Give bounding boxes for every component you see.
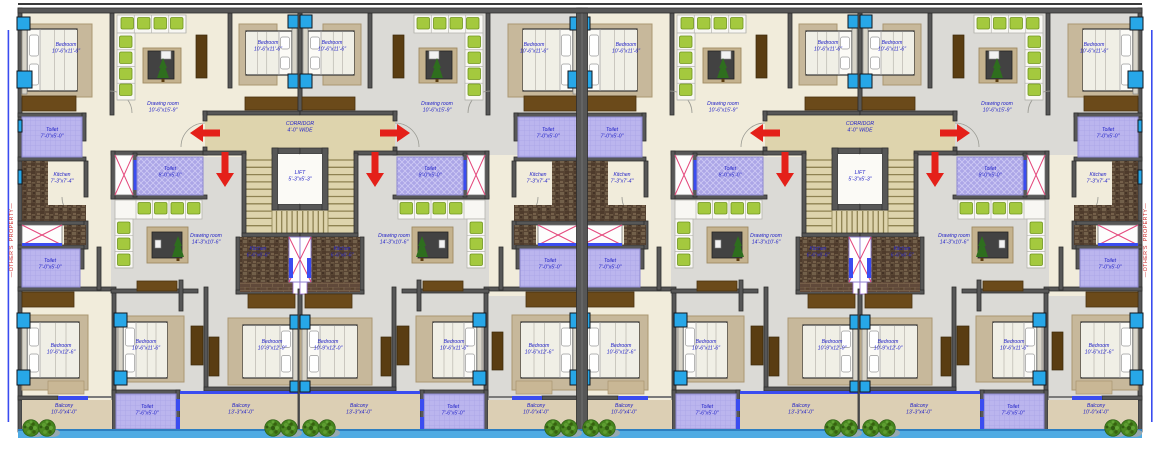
svg-text:Toilet: Toilet xyxy=(164,166,177,172)
svg-text:Kitchen: Kitchen xyxy=(810,246,827,252)
svg-text:13'-3"x4'-0": 13'-3"x4'-0" xyxy=(906,410,932,416)
svg-text:Toilet: Toilet xyxy=(1104,258,1117,264)
svg-text:Bedroom: Bedroom xyxy=(822,339,843,345)
svg-text:Bedroom: Bedroom xyxy=(1004,339,1025,345)
svg-text:Bedroom: Bedroom xyxy=(136,339,157,345)
svg-text:Bedroom: Bedroom xyxy=(524,42,545,48)
svg-text:Balcony: Balcony xyxy=(792,403,811,409)
svg-text:10'-6"x11'-6": 10'-6"x11'-6" xyxy=(52,49,80,55)
svg-text:7'-0"x5'-0": 7'-0"x5'-0" xyxy=(1099,265,1122,271)
svg-text:Toilet: Toilet xyxy=(1007,404,1020,410)
svg-text:Drawing room: Drawing room xyxy=(421,101,453,107)
svg-text:Bedroom: Bedroom xyxy=(258,40,279,46)
svg-text:Drawing room: Drawing room xyxy=(147,101,179,107)
svg-text:10'-6"x11'-6": 10'-6"x11'-6" xyxy=(254,47,282,53)
svg-text:6'-6"x6'-6": 6'-6"x6'-6" xyxy=(331,253,354,259)
svg-text:Toilet: Toilet xyxy=(44,258,57,264)
svg-text:7'-3"x7'-4": 7'-3"x7'-4" xyxy=(611,179,634,185)
svg-text:Balcony: Balcony xyxy=(1087,403,1106,409)
svg-text:Kitchen: Kitchen xyxy=(334,246,351,252)
svg-text:Bedroom: Bedroom xyxy=(611,343,632,349)
svg-text:Kitchen: Kitchen xyxy=(894,246,911,252)
svg-text:10'-9"x12'-0": 10'-9"x12'-0" xyxy=(258,346,287,352)
svg-text:6'-6"x6'-6": 6'-6"x6'-6" xyxy=(807,253,830,259)
svg-text:Kitchen: Kitchen xyxy=(250,246,267,252)
svg-text:7'-3"x7'-4": 7'-3"x7'-4" xyxy=(527,179,550,185)
svg-text:7'-3"x7'-4": 7'-3"x7'-4" xyxy=(1087,179,1110,185)
svg-text:—OTHER'S PROPERTY—: —OTHER'S PROPERTY— xyxy=(9,203,15,278)
svg-text:Drawing room: Drawing room xyxy=(981,101,1013,107)
svg-text:Kitchen: Kitchen xyxy=(530,172,547,178)
svg-text:Drawing room: Drawing room xyxy=(378,233,410,239)
svg-text:Toilet: Toilet xyxy=(447,404,460,410)
svg-text:10'-6"x15'-9": 10'-6"x15'-9" xyxy=(423,108,452,114)
svg-text:7'-0"x5'-0": 7'-0"x5'-0" xyxy=(1097,134,1120,140)
svg-text:LIFT: LIFT xyxy=(855,170,866,176)
svg-text:10'-6"x11'-6": 10'-6"x11'-6" xyxy=(878,47,906,53)
svg-text:10'-6"x15'-9": 10'-6"x15'-9" xyxy=(709,108,738,114)
svg-text:Balcony: Balcony xyxy=(232,403,251,409)
svg-text:Toilet: Toilet xyxy=(46,127,59,133)
svg-text:7'-0"x5'-0": 7'-0"x5'-0" xyxy=(39,265,62,271)
svg-text:8'-0"x5'-0": 8'-0"x5'-0" xyxy=(979,173,1002,179)
svg-text:—OTHER'S PROPERTY—: —OTHER'S PROPERTY— xyxy=(1143,203,1149,278)
svg-text:7'-0"x5'-0": 7'-0"x5'-0" xyxy=(599,265,622,271)
svg-text:Drawing room: Drawing room xyxy=(707,101,739,107)
svg-text:10'-6"x11'-6": 10'-6"x11'-6" xyxy=(440,346,468,352)
svg-text:10'-0"x4'-0": 10'-0"x4'-0" xyxy=(611,410,637,416)
svg-text:10'-6"x12'-6": 10'-6"x12'-6" xyxy=(1085,350,1114,356)
svg-text:13'-3"x4'-0": 13'-3"x4'-0" xyxy=(788,410,814,416)
svg-text:10'-6"x11'-6": 10'-6"x11'-6" xyxy=(132,346,160,352)
svg-text:10'-6"x12'-6": 10'-6"x12'-6" xyxy=(47,350,76,356)
svg-text:6'-6"x6'-6": 6'-6"x6'-6" xyxy=(247,253,270,259)
svg-text:Balcony: Balcony xyxy=(55,403,74,409)
svg-text:Bedroom: Bedroom xyxy=(696,339,717,345)
svg-text:Balcony: Balcony xyxy=(615,403,634,409)
svg-text:10'-9"x12'-0": 10'-9"x12'-0" xyxy=(818,346,847,352)
svg-text:LIFT: LIFT xyxy=(295,170,306,176)
svg-text:Toilet: Toilet xyxy=(724,166,737,172)
svg-text:7'-3"x7'-4": 7'-3"x7'-4" xyxy=(51,179,74,185)
svg-text:5'-3"x5'-3": 5'-3"x5'-3" xyxy=(848,177,872,183)
svg-text:Toilet: Toilet xyxy=(606,127,619,133)
svg-text:14'-3"x10'-6": 14'-3"x10'-6" xyxy=(192,240,221,246)
svg-text:4'-0" WIDE: 4'-0" WIDE xyxy=(287,128,313,134)
svg-text:7'-6"x5'-0": 7'-6"x5'-0" xyxy=(696,411,719,417)
svg-text:Kitchen: Kitchen xyxy=(54,172,71,178)
svg-text:Toilet: Toilet xyxy=(701,404,714,410)
svg-text:Toilet: Toilet xyxy=(984,166,997,172)
svg-text:Bedroom: Bedroom xyxy=(529,343,550,349)
svg-text:7'-0"x5'-0": 7'-0"x5'-0" xyxy=(601,134,624,140)
svg-text:Drawing room: Drawing room xyxy=(750,233,782,239)
svg-text:10'-6"x12'-6": 10'-6"x12'-6" xyxy=(607,350,636,356)
svg-text:8'-0"x5'-0": 8'-0"x5'-0" xyxy=(419,173,442,179)
svg-text:Kitchen: Kitchen xyxy=(1090,172,1107,178)
svg-text:7'-6"x5'-0": 7'-6"x5'-0" xyxy=(1002,411,1025,417)
svg-text:10'-0"x4'-0": 10'-0"x4'-0" xyxy=(523,410,549,416)
svg-text:7'-6"x5'-0": 7'-6"x5'-0" xyxy=(442,411,465,417)
svg-text:10'-6"x11'-6": 10'-6"x11'-6" xyxy=(612,49,640,55)
svg-text:Toilet: Toilet xyxy=(544,258,557,264)
svg-text:10'-0"x4'-0": 10'-0"x4'-0" xyxy=(51,410,77,416)
svg-text:10'-6"x11'-6": 10'-6"x11'-6" xyxy=(1000,346,1028,352)
svg-text:10'-6"x11'-6": 10'-6"x11'-6" xyxy=(1080,49,1108,55)
svg-text:Balcony: Balcony xyxy=(527,403,546,409)
svg-text:CORRIDOR: CORRIDOR xyxy=(286,121,314,127)
svg-text:Balcony: Balcony xyxy=(910,403,929,409)
svg-text:10'-6"x11'-6": 10'-6"x11'-6" xyxy=(692,346,720,352)
svg-text:13'-3"x4'-0": 13'-3"x4'-0" xyxy=(346,410,372,416)
svg-text:14'-3"x10'-6": 14'-3"x10'-6" xyxy=(940,240,969,246)
svg-text:7'-6"x5'-0": 7'-6"x5'-0" xyxy=(136,411,159,417)
svg-text:10'-6"x15'-9": 10'-6"x15'-9" xyxy=(149,108,178,114)
svg-text:Bedroom: Bedroom xyxy=(318,339,339,345)
svg-text:Bedroom: Bedroom xyxy=(882,40,903,46)
svg-text:10'-6"x11'-6": 10'-6"x11'-6" xyxy=(520,49,548,55)
svg-text:Bedroom: Bedroom xyxy=(262,339,283,345)
svg-text:Bedroom: Bedroom xyxy=(818,40,839,46)
svg-text:8'-0"x5'-0": 8'-0"x5'-0" xyxy=(719,173,742,179)
svg-text:5'-3"x5'-3": 5'-3"x5'-3" xyxy=(288,177,312,183)
svg-text:8'-0"x5'-0": 8'-0"x5'-0" xyxy=(159,173,182,179)
svg-text:4'-0" WIDE: 4'-0" WIDE xyxy=(847,128,873,134)
svg-text:Bedroom: Bedroom xyxy=(51,343,72,349)
svg-text:10'-0"x4'-0": 10'-0"x4'-0" xyxy=(1083,410,1109,416)
svg-text:14'-3"x10'-6": 14'-3"x10'-6" xyxy=(380,240,409,246)
svg-text:Balcony: Balcony xyxy=(350,403,369,409)
svg-text:6'-6"x6'-6": 6'-6"x6'-6" xyxy=(891,253,914,259)
svg-text:Drawing room: Drawing room xyxy=(190,233,222,239)
svg-text:7'-0"x5'-0": 7'-0"x5'-0" xyxy=(41,134,64,140)
svg-text:13'-3"x4'-0": 13'-3"x4'-0" xyxy=(228,410,254,416)
svg-text:Bedroom: Bedroom xyxy=(56,42,77,48)
svg-text:Bedroom: Bedroom xyxy=(1089,343,1110,349)
svg-text:Toilet: Toilet xyxy=(1102,127,1115,133)
svg-text:10'-6"x15'-9": 10'-6"x15'-9" xyxy=(983,108,1012,114)
svg-text:Bedroom: Bedroom xyxy=(878,339,899,345)
svg-text:10'-9"x12'-0": 10'-9"x12'-0" xyxy=(314,346,343,352)
svg-text:Drawing room: Drawing room xyxy=(938,233,970,239)
svg-text:Toilet: Toilet xyxy=(542,127,555,133)
svg-text:Bedroom: Bedroom xyxy=(444,339,465,345)
svg-text:10'-6"x12'-6": 10'-6"x12'-6" xyxy=(525,350,554,356)
svg-text:Bedroom: Bedroom xyxy=(322,40,343,46)
svg-text:Bedroom: Bedroom xyxy=(616,42,637,48)
svg-text:Bedroom: Bedroom xyxy=(1084,42,1105,48)
svg-text:7'-0"x5'-0": 7'-0"x5'-0" xyxy=(539,265,562,271)
svg-text:Toilet: Toilet xyxy=(141,404,154,410)
svg-text:Toilet: Toilet xyxy=(604,258,617,264)
svg-text:10'-6"x11'-6": 10'-6"x11'-6" xyxy=(814,47,842,53)
svg-text:Toilet: Toilet xyxy=(424,166,437,172)
svg-text:10'-6"x11'-6": 10'-6"x11'-6" xyxy=(318,47,346,53)
svg-text:CORRIDOR: CORRIDOR xyxy=(846,121,874,127)
svg-text:14'-3"x10'-6": 14'-3"x10'-6" xyxy=(752,240,781,246)
svg-text:Kitchen: Kitchen xyxy=(614,172,631,178)
svg-text:10'-9"x12'-0": 10'-9"x12'-0" xyxy=(874,346,903,352)
svg-text:7'-0"x5'-0": 7'-0"x5'-0" xyxy=(537,134,560,140)
